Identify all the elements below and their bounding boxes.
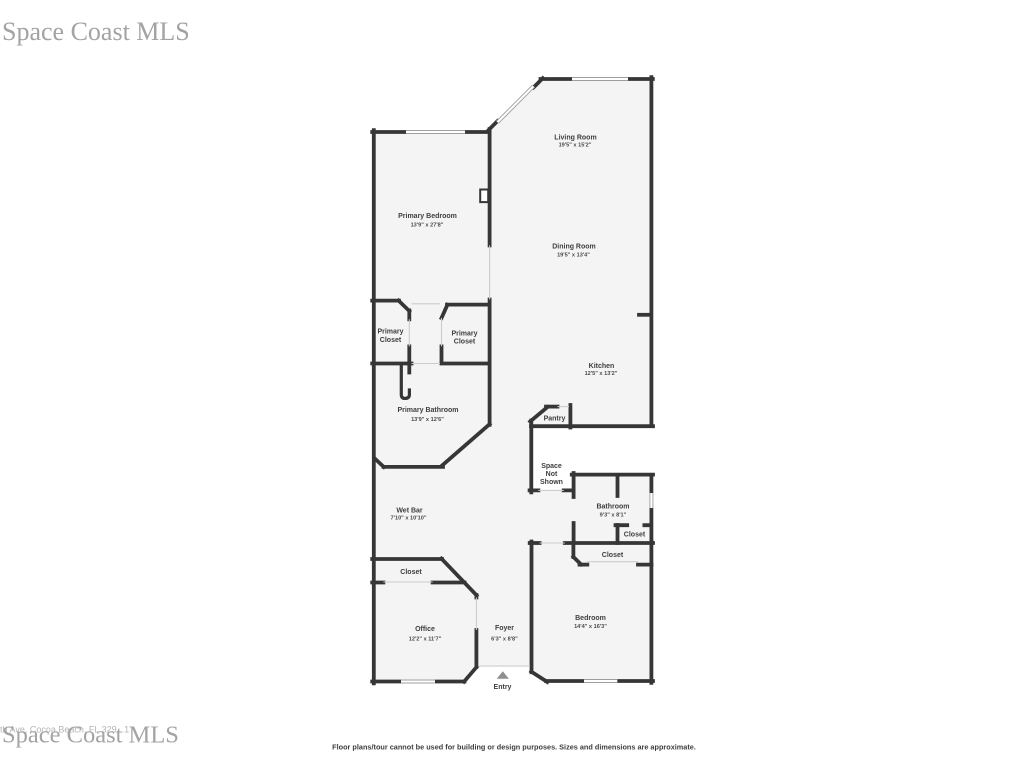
svg-text:Closet: Closet (400, 569, 422, 576)
svg-text:Closet: Closet (380, 337, 402, 344)
svg-text:19'5" x 13'4": 19'5" x 13'4" (557, 253, 590, 259)
svg-text:Living Room: Living Room (554, 135, 596, 142)
svg-text:Closet: Closet (454, 339, 476, 346)
svg-text:Space: Space (541, 463, 562, 470)
svg-text:13'9" x 12'6": 13'9" x 12'6" (411, 417, 444, 423)
svg-text:Primary: Primary (377, 329, 403, 336)
svg-text:Closet: Closet (602, 552, 624, 559)
svg-text:Office: Office (415, 626, 435, 633)
svg-text:Bedroom: Bedroom (575, 615, 606, 622)
svg-text:12'2" x 11'7": 12'2" x 11'7" (409, 636, 442, 642)
svg-text:9'3" x 8'1": 9'3" x 8'1" (600, 513, 627, 519)
svg-text:Closet: Closet (624, 532, 646, 539)
svg-text:Kitchen: Kitchen (589, 363, 615, 370)
svg-text:Bathroom: Bathroom (596, 504, 629, 511)
svg-text:6'3" x 8'8": 6'3" x 8'8" (491, 636, 518, 642)
svg-text:Dining Room: Dining Room (552, 244, 596, 251)
svg-text:12'5" x 13'2": 12'5" x 13'2" (585, 371, 618, 377)
svg-text:Space Coast MLS: Space Coast MLS (2, 17, 190, 46)
svg-text:14'4" x 16'3": 14'4" x 16'3" (574, 624, 607, 630)
svg-text:Primary Bedroom: Primary Bedroom (398, 213, 457, 220)
svg-text:7'10" x 10'10": 7'10" x 10'10" (391, 515, 427, 521)
svg-text:Primary: Primary (451, 331, 477, 338)
svg-text:Primary Bathroom: Primary Bathroom (397, 407, 458, 414)
svg-text:Foyer: Foyer (495, 625, 514, 632)
svg-text:Wet Bar: Wet Bar (396, 508, 423, 515)
svg-text:13'9" x 27'8": 13'9" x 27'8" (411, 223, 444, 229)
svg-text:Not: Not (546, 471, 558, 478)
svg-text:19'5" x 15'2": 19'5" x 15'2" (559, 143, 592, 149)
svg-text:Floor plans/tour cannot be use: Floor plans/tour cannot be used for buil… (332, 743, 696, 752)
svg-text:Space Coast MLS: Space Coast MLS (2, 722, 179, 749)
svg-text:Pantry: Pantry (544, 416, 566, 423)
svg-text:Shown: Shown (540, 479, 563, 486)
svg-text:Entry: Entry (494, 684, 512, 691)
